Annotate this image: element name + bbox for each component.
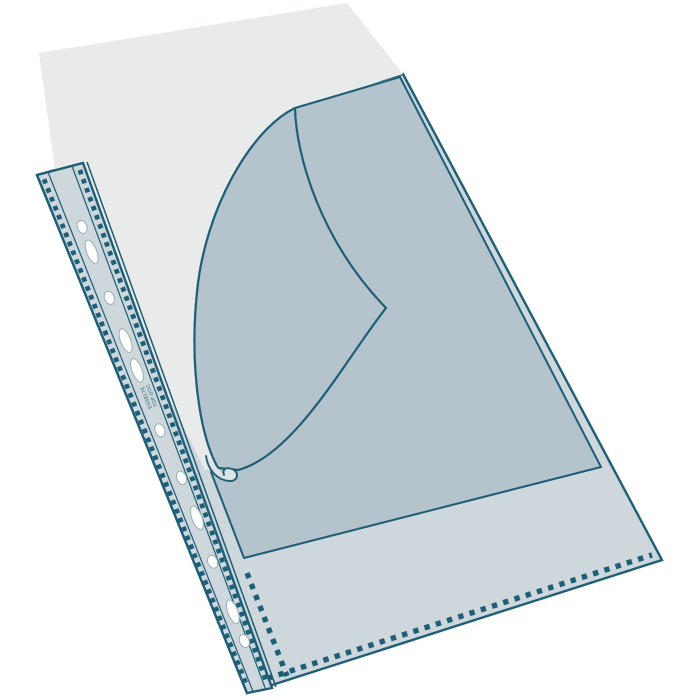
sheet-protector-illustration: ESSELTE TOP DOC: [0, 0, 700, 700]
product-image-canvas: ESSELTE TOP DOC: [0, 0, 700, 700]
